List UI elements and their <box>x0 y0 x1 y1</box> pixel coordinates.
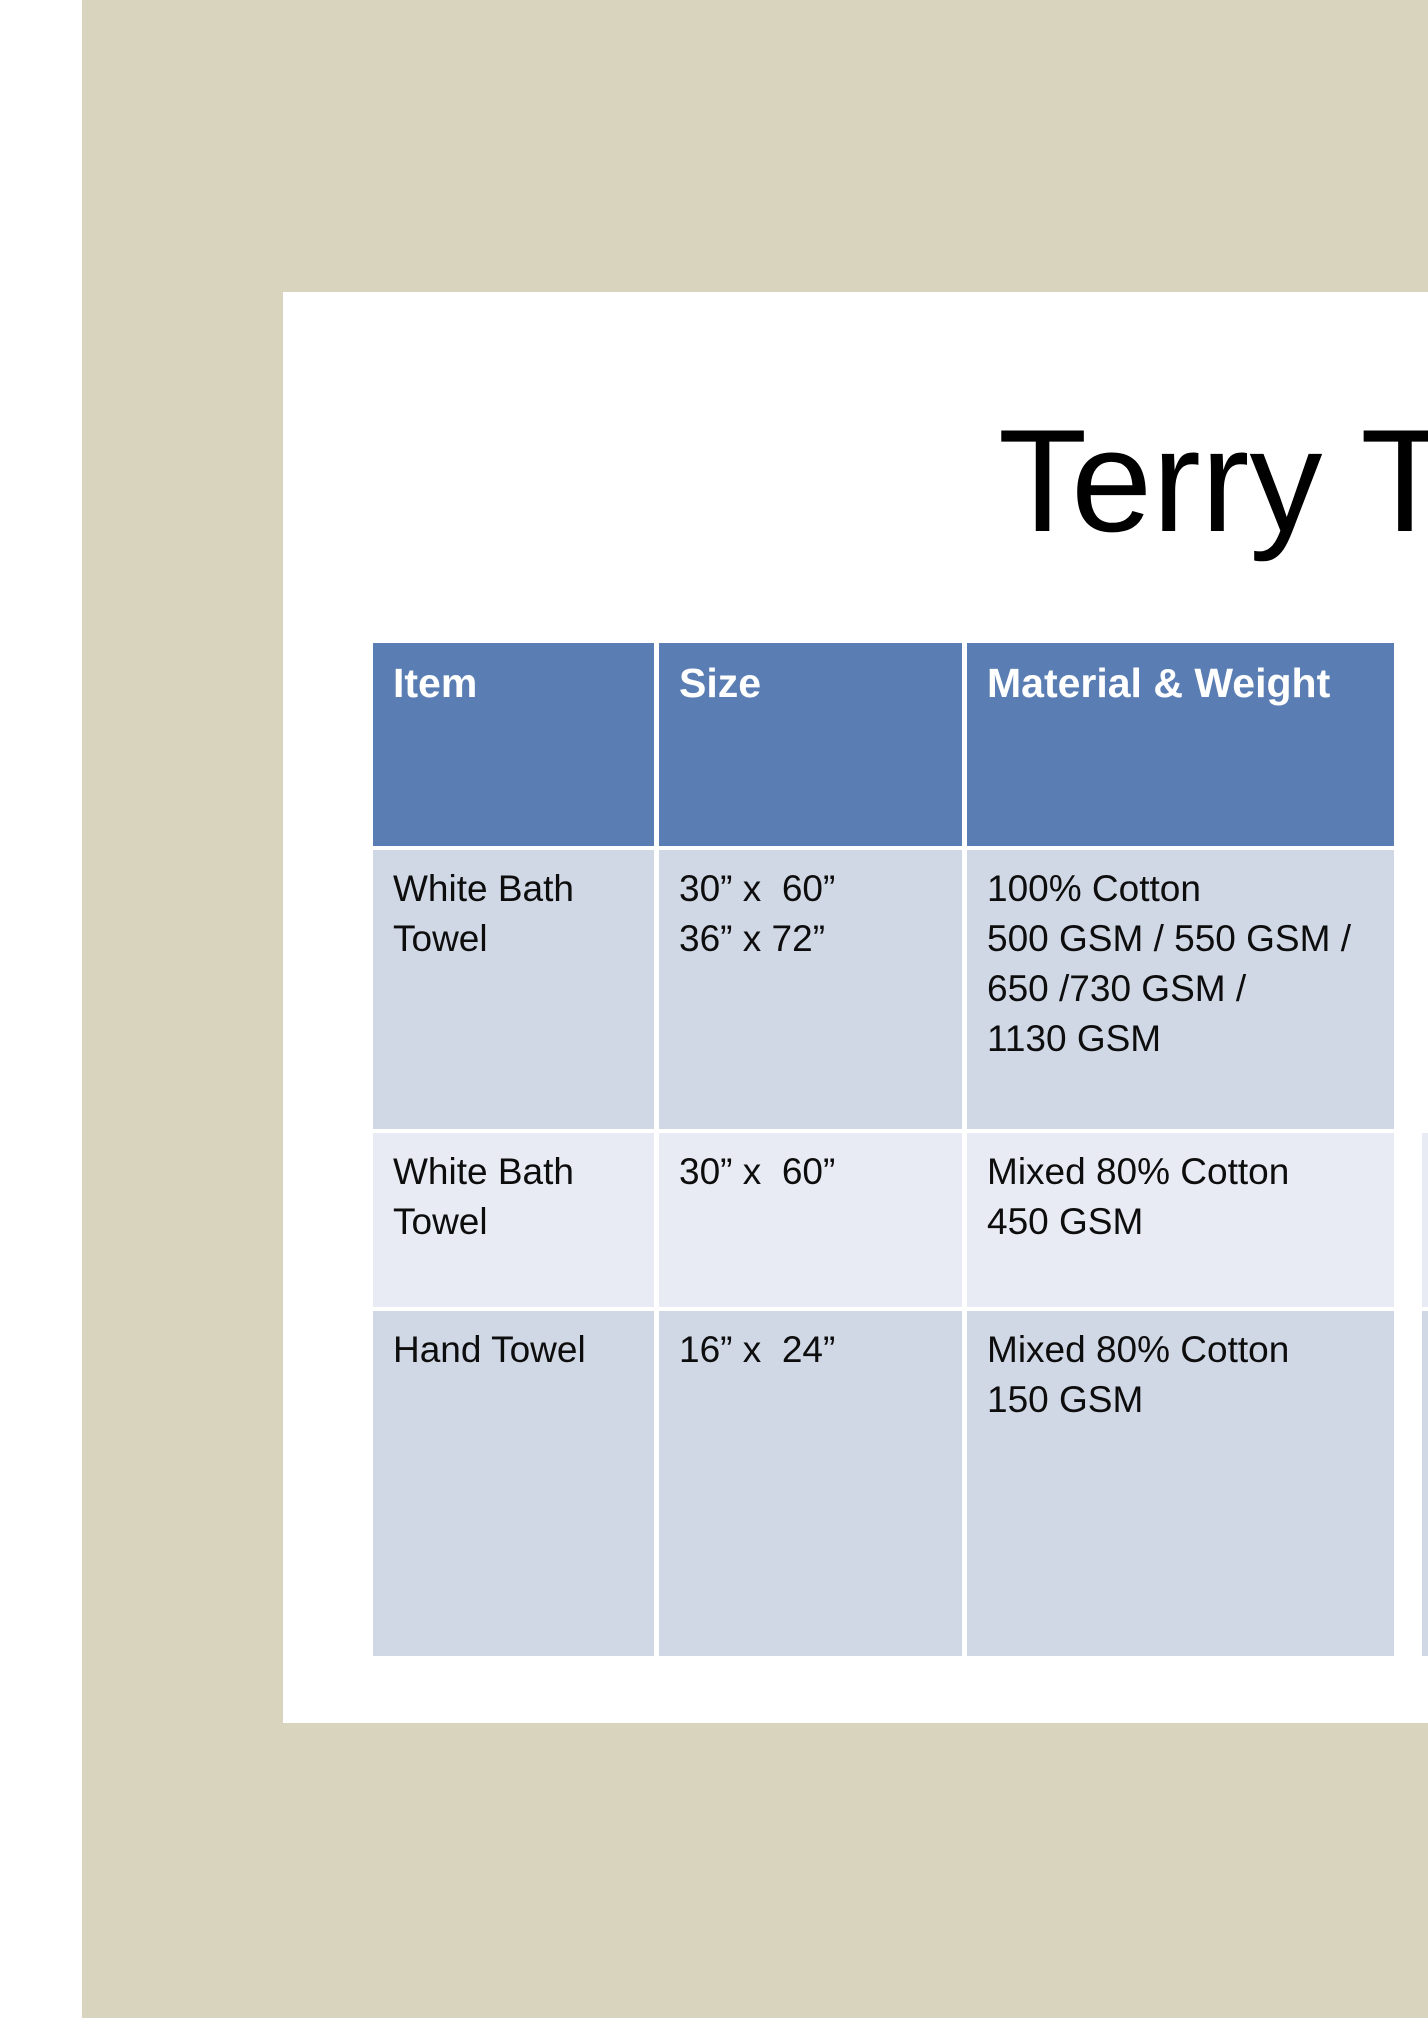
cell-item-row3: Hand Towel <box>373 1311 654 1656</box>
cell-line: 650 /730 GSM / <box>987 964 1382 1014</box>
clipped-table-sliver-row3 <box>1422 1311 1428 1656</box>
cell-material-row2: Mixed 80% Cotton 450 GSM <box>967 1133 1394 1307</box>
cell-size-row1: 30” x 60” 36” x 72” <box>659 850 962 1129</box>
cell-item-row2: White Bath Towel <box>373 1133 654 1307</box>
cell-line: White Bath <box>393 1147 642 1197</box>
cell-line: 450 GSM <box>987 1197 1382 1247</box>
slide-title: Terry T <box>998 408 1428 554</box>
cell-line: 150 GSM <box>987 1375 1382 1425</box>
cell-material-row3: Mixed 80% Cotton 150 GSM <box>967 1311 1394 1656</box>
cell-line: Towel <box>393 914 642 964</box>
cell-line: 36” x 72” <box>679 914 950 964</box>
cell-line: 30” x 60” <box>679 1147 950 1197</box>
cell-line: 100% Cotton <box>987 864 1382 914</box>
left-white-strip <box>0 0 82 2018</box>
column-header-material: Material & Weight <box>967 643 1394 846</box>
cell-line: 16” x 24” <box>679 1325 950 1375</box>
cell-size-row2: 30” x 60” <box>659 1133 962 1307</box>
cell-line: Mixed 80% Cotton <box>987 1325 1382 1375</box>
cell-line: 500 GSM / 550 GSM / <box>987 914 1382 964</box>
cell-material-row1: 100% Cotton 500 GSM / 550 GSM / 650 /730… <box>967 850 1394 1129</box>
cell-line: Hand Towel <box>393 1325 642 1375</box>
cell-size-row3: 16” x 24” <box>659 1311 962 1656</box>
column-header-size: Size <box>659 643 962 846</box>
column-header-item: Item <box>373 643 654 846</box>
cell-line: White Bath <box>393 864 642 914</box>
cell-line: 30” x 60” <box>679 864 950 914</box>
towel-table: Item Size Material & Weight White Bath T… <box>373 643 1394 1656</box>
cell-line: Towel <box>393 1197 642 1247</box>
cell-line: 1130 GSM <box>987 1014 1382 1064</box>
cell-line: Mixed 80% Cotton <box>987 1147 1382 1197</box>
clipped-table-sliver-row2 <box>1422 1133 1428 1307</box>
cell-item-row1: White Bath Towel <box>373 850 654 1129</box>
